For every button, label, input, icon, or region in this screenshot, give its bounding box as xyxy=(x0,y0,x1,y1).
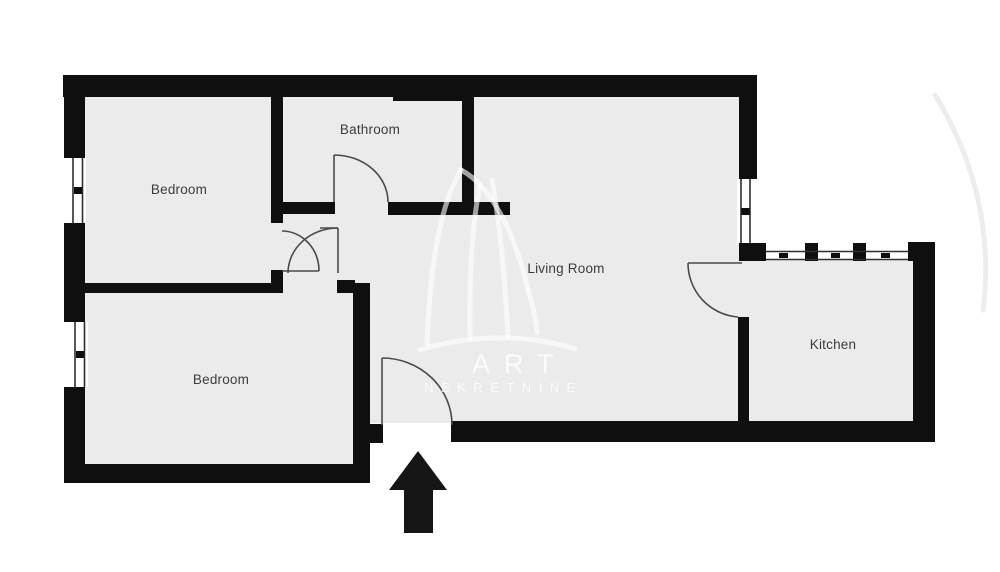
room-label-bathroom: Bathroom xyxy=(340,122,400,137)
watermark-line1: ART xyxy=(472,349,568,379)
wall-bottom-main xyxy=(451,421,935,442)
wall-entrance-left-stub xyxy=(370,424,383,443)
room-label-bedroom-top: Bedroom xyxy=(151,182,207,197)
window-bedroom-bottom xyxy=(64,322,88,387)
wall-living-kitchen-divider xyxy=(738,317,749,421)
wall-kitchen-corner xyxy=(908,242,935,261)
wall-bedroom-bottom-right xyxy=(353,283,370,483)
watermark-line2: NEKRETNINE xyxy=(424,380,583,395)
wall-top xyxy=(63,75,757,97)
wall-bedroom-bottom-bottom xyxy=(64,464,370,483)
floor-areas xyxy=(83,93,913,464)
room-label-bedroom-bottom: Bedroom xyxy=(193,372,249,387)
entrance-arrow-icon xyxy=(389,451,447,533)
wall-bathroom-right xyxy=(462,97,474,203)
wall-bedroom-top-right xyxy=(271,97,283,223)
window-living-room xyxy=(737,179,759,243)
wall-bedrooms-divider xyxy=(64,283,283,293)
wall-bathroom-bottom-left xyxy=(283,202,335,214)
wall-bathroom-top-step xyxy=(393,97,462,101)
window-bedroom-top xyxy=(62,158,86,223)
doorway-bedroom-top-floor xyxy=(271,223,283,271)
wall-living-room-right xyxy=(739,75,757,179)
room-label-kitchen: Kitchen xyxy=(810,337,856,352)
floor-plan: ART NEKRETNINE Bedroom Bathroom Living R… xyxy=(0,0,1000,572)
wall-corner-block-window xyxy=(739,243,766,261)
floor-plan-page: ART NEKRETNINE Bedroom Bathroom Living R… xyxy=(0,0,1000,572)
wall-kitchen-right xyxy=(913,261,935,441)
wall-left xyxy=(64,75,85,483)
room-label-living-room: Living Room xyxy=(527,261,604,276)
window-kitchen-band xyxy=(766,252,908,260)
watermark-arc xyxy=(935,95,986,310)
wall-divider-right-stub xyxy=(337,280,355,293)
